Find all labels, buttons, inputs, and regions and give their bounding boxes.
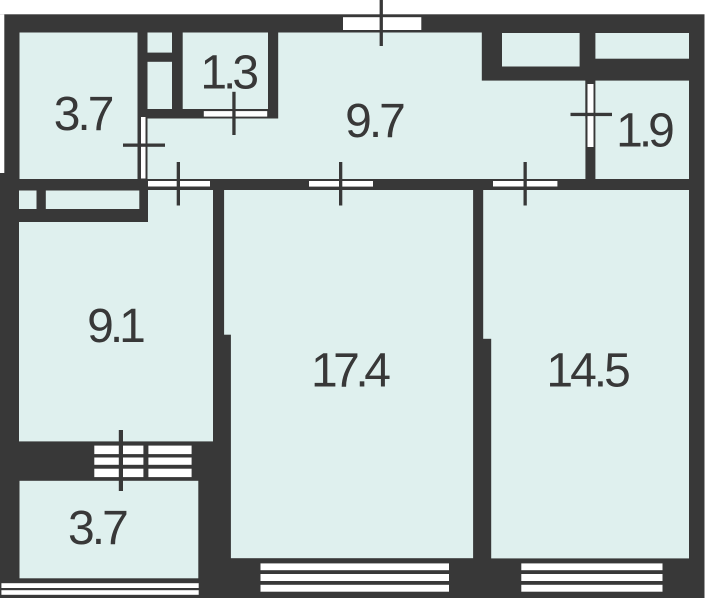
svg-text:1.3: 1.3 <box>200 47 257 100</box>
svg-text:14.5: 14.5 <box>546 344 629 397</box>
svg-text:1.9: 1.9 <box>616 105 673 158</box>
svg-text:3.7: 3.7 <box>54 88 113 141</box>
svg-text:9.7: 9.7 <box>345 95 404 148</box>
svg-text:17.4: 17.4 <box>311 345 390 398</box>
svg-text:3.7: 3.7 <box>68 502 127 555</box>
svg-text:9.1: 9.1 <box>87 300 144 353</box>
